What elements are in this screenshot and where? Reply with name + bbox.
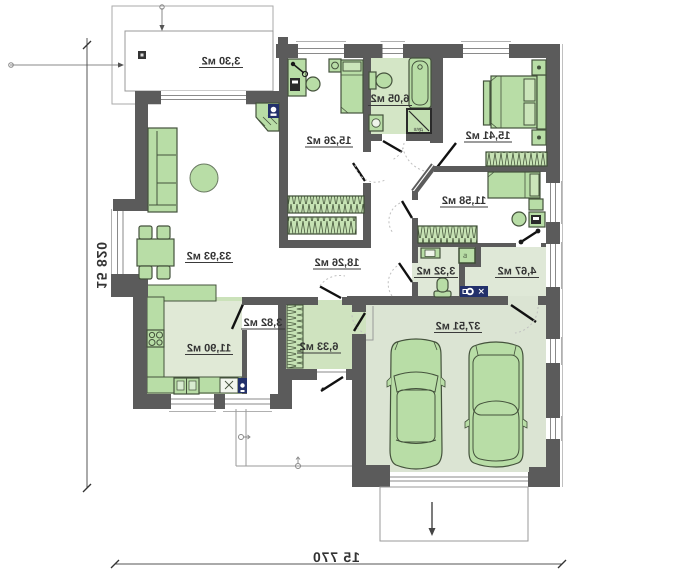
svg-text:душ: душ <box>414 127 423 133</box>
svg-text:11,90 м2: 11,90 м2 <box>187 343 231 355</box>
svg-text:15,26 м2: 15,26 м2 <box>307 135 352 147</box>
svg-text:11,58 м2: 11,58 м2 <box>442 195 486 207</box>
svg-text:3,32 м2: 3,32 м2 <box>417 266 456 278</box>
svg-text:37,51 м2: 37,51 м2 <box>436 321 481 333</box>
svg-text:3,82 м2: 3,82 м2 <box>244 317 283 329</box>
svg-text:3,30 м2: 3,30 м2 <box>202 56 241 68</box>
svg-text:6,05 м2: 6,05 м2 <box>371 93 410 105</box>
svg-text:15 820: 15 820 <box>94 241 110 289</box>
svg-text:6,33 м2: 6,33 м2 <box>300 341 339 353</box>
svg-text:15,41 м2: 15,41 м2 <box>466 130 511 142</box>
svg-text:18,26 м2: 18,26 м2 <box>315 257 360 269</box>
svg-text:33,93 м2: 33,93 м2 <box>187 251 232 263</box>
svg-text:Б: Б <box>463 253 467 260</box>
svg-text:4,67 м2: 4,67 м2 <box>498 266 537 278</box>
svg-text:15 770: 15 770 <box>312 549 360 565</box>
